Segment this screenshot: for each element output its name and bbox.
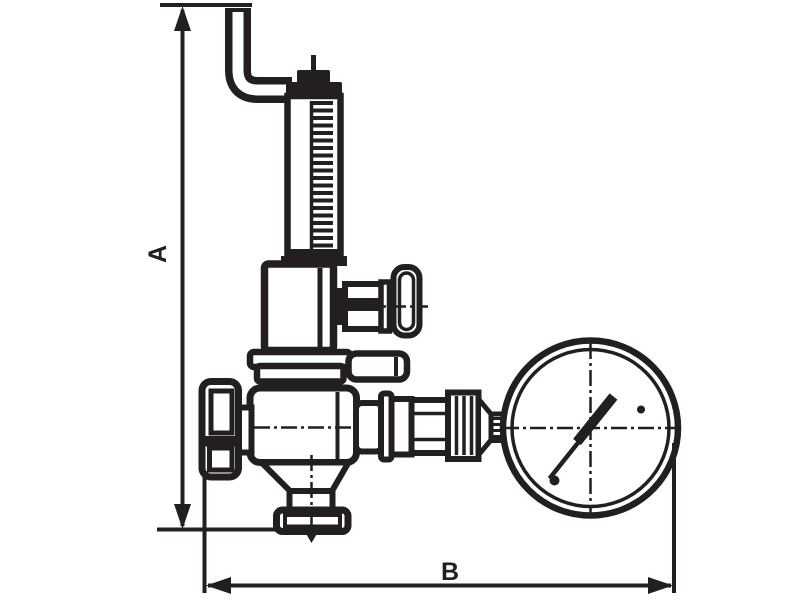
gauge-piping bbox=[356, 393, 507, 460]
outlet-cone bbox=[262, 463, 349, 492]
outlet-centerline-tip bbox=[307, 535, 317, 544]
needle-tail-dot bbox=[550, 476, 560, 486]
dim-a-label: A bbox=[144, 245, 172, 263]
inlet-handwheel bbox=[202, 382, 252, 478]
flange-band-2 bbox=[257, 366, 344, 382]
tee-handle bbox=[394, 267, 420, 336]
side-port bbox=[349, 354, 408, 380]
handwheel-spoke-top bbox=[211, 391, 232, 433]
dim-b-arrow-left bbox=[206, 577, 231, 594]
handwheel-spoke-bottom bbox=[210, 448, 233, 470]
pressure-gauge bbox=[503, 341, 678, 516]
side-stem-handle bbox=[333, 267, 428, 336]
valve-body bbox=[250, 388, 357, 463]
body-shell bbox=[250, 388, 357, 463]
handwheel-hub bbox=[203, 436, 238, 447]
upper-flange bbox=[250, 352, 407, 382]
cap-small bbox=[297, 70, 330, 83]
dim-b-arrow-right bbox=[648, 577, 673, 594]
adjusting-screw-cap bbox=[286, 55, 342, 99]
valve-diagram-svg: A B bbox=[0, 0, 800, 598]
vent-pipe bbox=[238, 8, 292, 90]
pipe-block bbox=[412, 400, 449, 453]
dim-a-arrow-down bbox=[174, 504, 191, 529]
dim-b-label: B bbox=[441, 558, 459, 586]
bonnet-tube bbox=[288, 96, 341, 253]
spring-housing bbox=[265, 264, 334, 351]
dial-peg-dot bbox=[637, 406, 645, 414]
dim-a-arrow-up bbox=[174, 6, 191, 31]
valve-technical-drawing: A B bbox=[0, 0, 800, 598]
housing-box bbox=[265, 264, 334, 351]
vent-pipe-outer bbox=[238, 8, 292, 90]
